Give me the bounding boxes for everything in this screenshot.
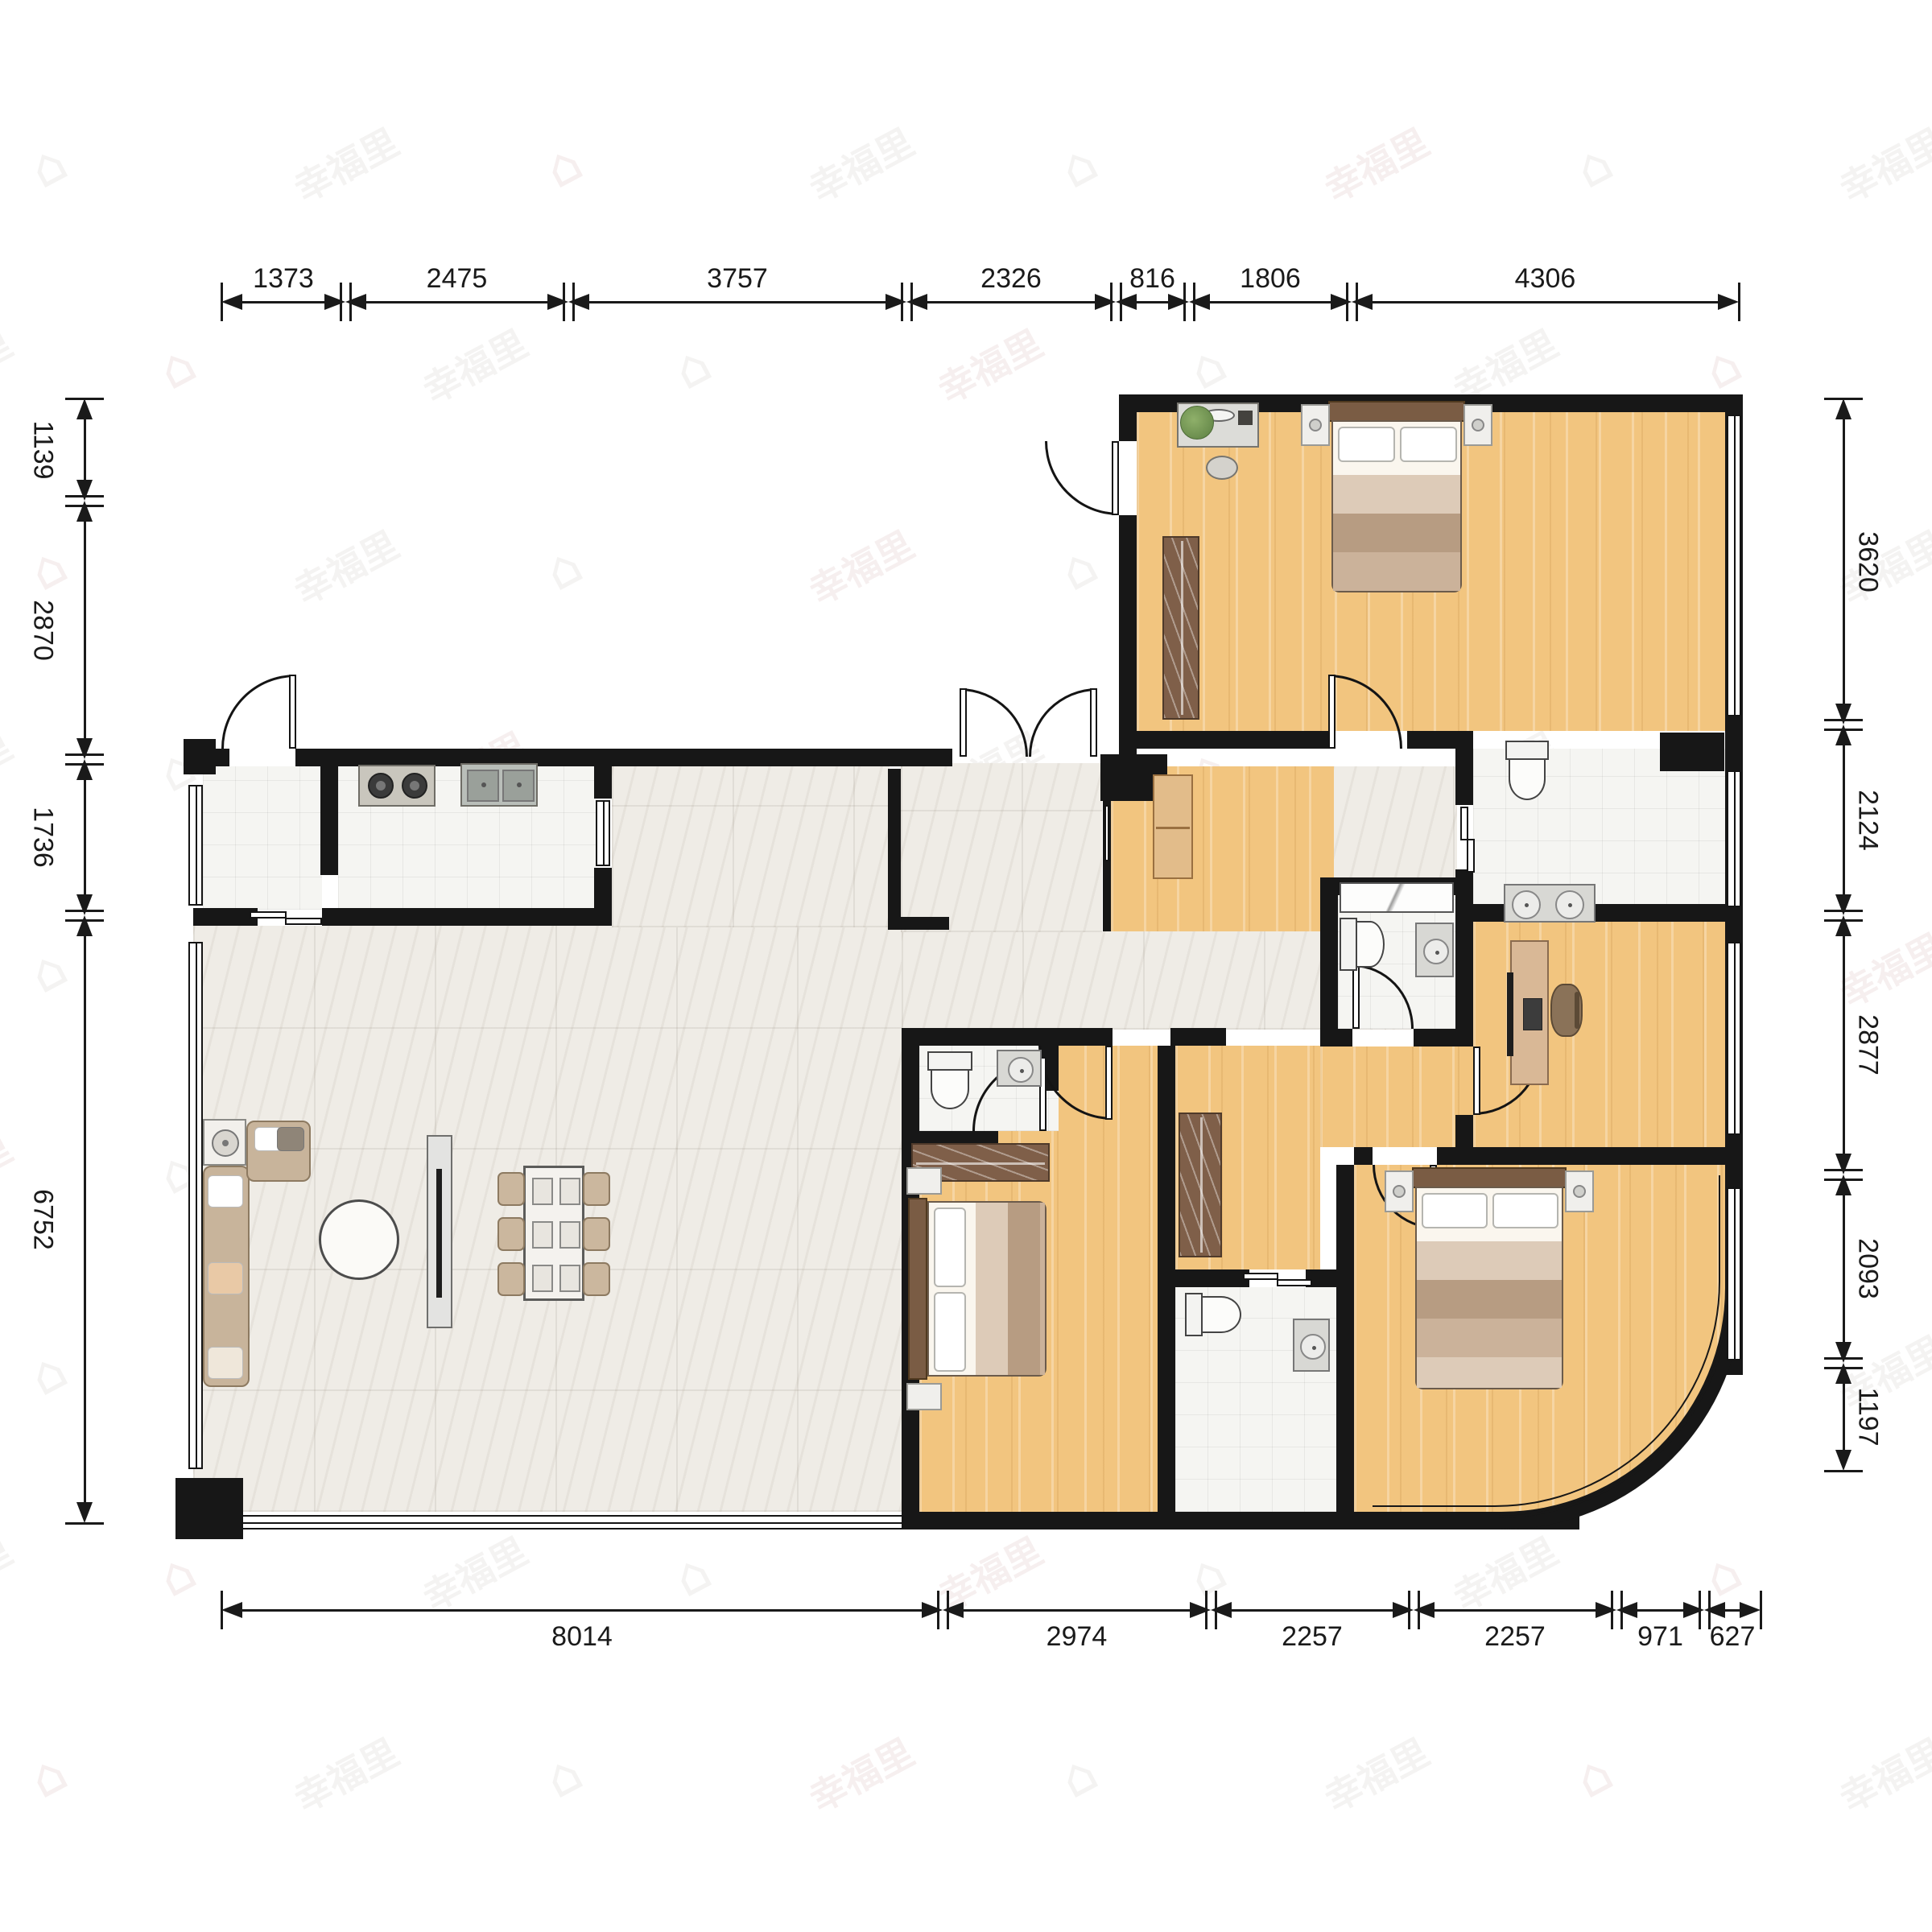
bed-headboard [1412,1167,1567,1188]
dim-arrowhead [76,894,93,915]
drain-icon [481,782,486,787]
sink-basin-icon [1423,939,1449,964]
dim-arrowhead [1393,1602,1414,1618]
dim-arrowhead [885,294,906,310]
wall-segment [1158,1046,1175,1512]
watermark-text: 幸福里 [284,114,407,213]
wall-segment [888,917,949,930]
dim-arrowhead [1704,1602,1725,1618]
toilet-tank [927,1051,972,1071]
window-foyer-pass [1104,805,1111,861]
dim-tick [349,283,352,321]
dim-value-label: 816 [1129,263,1175,295]
dim-arrow-line [1371,301,1719,303]
dim-tick [1824,1357,1863,1360]
watermark-logo-icon: ⌂ [1695,1542,1752,1609]
double-sink-vanity [1504,884,1596,923]
watermark-logo-icon: ⌂ [20,133,77,200]
dim-arrowhead [1211,1602,1232,1618]
dim-arrowhead [1352,294,1373,310]
dim-arrowhead [1835,1174,1851,1195]
dim-value-label: 2093 [1852,1238,1884,1299]
watermark-text: 幸福里 [1443,1522,1567,1621]
watermark-text: 幸福里 [413,315,536,414]
dim-arrowhead [1835,1363,1851,1384]
watermark-text: 幸福里 [413,1522,536,1621]
dim-arrowhead [76,915,93,936]
dim-arrowhead [1835,894,1851,915]
plant [1180,406,1214,440]
dim-tick [901,283,903,321]
dim-arrowhead [221,1602,242,1618]
dim-tick [1708,1591,1711,1629]
dim-arrow-line [84,778,86,896]
wall-segment [919,1028,1113,1046]
dim-arrowhead [1616,1602,1637,1618]
inner-hall-pocket-floor [1320,1046,1473,1147]
drain-icon [1568,903,1572,907]
dim-arrowhead [1095,294,1116,310]
bed-blanket [1417,1241,1562,1388]
watermark-logo-icon: ⌂ [1566,1743,1623,1810]
watermark-logo-icon: ⌂ [664,334,721,402]
watermark-logo-icon: ⌂ [1179,334,1236,402]
watermark-logo-icon: ⌂ [20,938,77,1005]
chair-back-icon [1575,992,1579,1029]
dim-arrowhead [324,294,345,310]
toilet-bowl [1356,921,1385,968]
wall-segment [594,749,612,799]
dining-chair [583,1262,610,1296]
window-study-right [1727,942,1741,1135]
watermark-text: 幸福里 [1443,1925,1567,1932]
dim-arrowhead [76,398,93,419]
dining-chair [497,1172,525,1206]
dim-tick [1824,1169,1863,1171]
dim-value-label: 971 [1637,1621,1683,1653]
master-wardrobe [1162,536,1199,720]
dining-chair [583,1172,610,1206]
dim-arrowhead [1596,1602,1616,1618]
dim-value-label: 2974 [1046,1621,1108,1653]
dim-tick [1699,1591,1701,1629]
dim-arrow-line [1843,418,1845,705]
watermark-logo-icon: ⌂ [20,1340,77,1408]
dim-value-label: 1806 [1240,263,1301,295]
watermark-logo-icon: ⌂ [535,535,592,603]
dim-arrowhead [1835,398,1851,419]
cabinet-shelf-icon [1156,827,1190,829]
sofa-pillow-icon [277,1127,304,1151]
small-bath-toilet [1340,918,1388,974]
main-entry-door-swing-arc [1045,441,1119,515]
small-bath-door-leaf [1352,964,1360,1029]
toilet-tank [1505,741,1549,760]
dim-tick [1183,283,1186,321]
bed-mattress [1415,1187,1563,1389]
dim-tick [1760,1591,1762,1629]
watermark-text: 幸福里 [799,516,923,615]
office-chair [1550,984,1583,1037]
dim-value-label: 627 [1710,1621,1756,1653]
wardrobe-rail-icon [1200,1117,1203,1253]
dim-arrow-line [588,301,887,303]
dim-tick [340,283,342,321]
wardrobe-rail-icon [916,1162,1045,1165]
bed-pillow-icon [1338,427,1395,462]
dim-tick [947,1591,949,1629]
burner-center-icon [376,781,386,791]
main-bath-slide [1460,807,1468,840]
living-upper-floor [612,766,890,927]
dim-value-label: 2257 [1282,1621,1343,1653]
shower-tray [1340,882,1454,913]
dim-arrowhead [1835,915,1851,936]
watermark-logo-icon: ⌂ [1051,535,1108,603]
plate-setting-icon [532,1178,553,1205]
wall-segment [322,908,612,926]
center-bath-sink [1293,1319,1330,1372]
dim-tick [1824,729,1863,731]
dim-arrowhead [1189,294,1210,310]
bed-headboard [908,1198,927,1380]
bed-pillow-icon [1492,1193,1558,1228]
study-door-leaf [1473,1046,1480,1115]
dim-tick [1215,1591,1217,1629]
dresser-stool [1206,456,1238,480]
dim-arrowhead [1414,1602,1435,1618]
center-bath-toilet [1185,1293,1245,1340]
dim-tick [65,910,104,912]
stove [358,765,436,807]
dim-value-label: 4306 [1515,263,1576,295]
wall-segment [1170,1028,1226,1046]
dim-arrowhead [345,294,366,310]
dim-value-label: 8014 [551,1621,613,1653]
wall-segment [175,1478,243,1539]
dresser-drawers-icon [1238,411,1253,425]
watermark-text: 幸福里 [0,315,20,414]
ensuite-toilet [927,1051,976,1113]
tv-icon [436,1169,442,1298]
dim-tick [1824,1470,1863,1472]
toilet-tank [1185,1293,1203,1336]
window-glass-line [603,802,605,865]
small-bath-sink [1415,923,1454,977]
hall-wardrobe [1179,1113,1222,1257]
dim-arrow-line [1843,744,1845,896]
watermark-logo-icon: ⌂ [1051,1743,1108,1810]
dim-value-label: 2870 [27,600,59,661]
wall-segment [1119,394,1137,441]
toilet-bowl [931,1069,969,1109]
dining-chair [583,1217,610,1251]
dim-tick [1205,1591,1207,1629]
dim-arrowhead [1168,294,1189,310]
wall-segment [1336,1165,1354,1512]
bed-mattress [927,1201,1046,1377]
watermark-logo-icon: ⌂ [20,535,77,603]
dim-tick [1824,719,1863,721]
dim-value-label: 1736 [27,807,59,868]
dim-arrowhead [1835,1154,1851,1174]
wall-segment [1414,1029,1473,1046]
dim-arrowhead [568,294,589,310]
dim-tick [1824,1367,1863,1369]
watermark-text: 幸福里 [0,1925,20,1932]
watermark-logo-icon: ⌂ [535,1743,592,1810]
living-double-door-right-leaf [1090,688,1097,757]
bed-pillow-icon [1422,1193,1488,1228]
tv-board [427,1135,452,1328]
watermark-text: 幸福里 [0,717,20,816]
dim-value-label: 6752 [27,1189,59,1250]
watermark-logo-icon: ⌂ [1566,133,1623,200]
dining-chair [497,1262,525,1296]
lamp-center-icon [222,1140,229,1146]
dim-arrowhead [76,501,93,522]
kitchen-slide [250,911,287,919]
watermark-text: 幸福里 [1315,1724,1438,1823]
sofa-pillow-icon [208,1175,243,1207]
dim-value-label: 1139 [27,420,59,479]
dim-value-label: 1373 [253,263,314,295]
wall-segment [1175,1269,1249,1287]
wall-segment [295,749,952,766]
ensuite-sink [997,1050,1042,1087]
window-glass-line [1734,1189,1736,1359]
window-glass-line [1734,772,1736,906]
dining-chair [497,1217,525,1251]
plate-setting-icon [532,1265,553,1292]
watermark-text: 幸福里 [284,516,407,615]
dim-tick [221,283,223,321]
sofa-long [203,1166,250,1387]
bedroom2-bed [906,1167,1050,1410]
entry-vestibule-floor [901,763,1102,932]
storage-door-leaf [289,675,296,749]
dim-arrowhead [1683,1602,1704,1618]
watermark-logo-icon: ⌂ [1179,1542,1236,1609]
sink-basin-icon [1512,890,1541,919]
watermark-text: 幸福里 [928,315,1051,414]
living-double-door-left-leaf [960,688,967,757]
watermark-logo-icon: ⌂ [1051,133,1108,200]
sink-basin-icon [1555,890,1584,919]
drain-icon [1312,1346,1316,1350]
center-bath-slide [1277,1279,1312,1286]
dim-arrowhead [76,1502,93,1523]
sofa-pillow-icon [208,1347,243,1379]
dim-value-label: 2475 [427,263,488,295]
window-mainbath-right [1727,770,1741,907]
watermark-text: 幸福里 [1315,114,1438,213]
hall-east-floor [1332,766,1457,879]
wall-segment [1660,733,1724,771]
bedroom3-bed [1385,1167,1594,1389]
wall-segment [888,769,901,930]
main-entry-door-leaf [1112,441,1119,515]
dim-value-label: 2257 [1484,1621,1546,1653]
dim-arrow-line [1843,1194,1845,1344]
watermark-text: 幸福里 [0,1120,20,1219]
nightstand-knob-icon [1393,1185,1406,1198]
bed-blanket [1333,475,1460,591]
dim-tick [572,283,575,321]
dim-arrowhead [943,1602,964,1618]
floor-plan-canvas: 幸福里⌂幸福里⌂幸福里⌂幸福里⌂幸福里⌂幸福里⌂幸福里⌂幸福里⌂幸福里幸福里⌂幸… [0,0,1932,1932]
bed-mattress [1331,420,1462,592]
wall-segment [1320,1029,1352,1046]
dim-tick [65,398,104,400]
dim-arrowhead [1331,294,1352,310]
dim-tick [1824,1179,1863,1181]
dim-tick [1738,283,1740,321]
dim-tick [65,495,104,497]
dim-tick [65,1522,104,1525]
watermark-text: 幸福里 [1443,0,1567,12]
dim-tick [1193,283,1195,321]
wall-segment [1455,922,1473,1046]
dim-arrowhead [547,294,568,310]
watermark-logo-icon: ⌂ [535,133,592,200]
wall-segment [1320,877,1338,1046]
dim-arrow-line [365,301,549,303]
dim-tick [1408,1591,1410,1629]
watermark-text: 幸福里 [413,0,536,12]
dim-arrow-line [84,418,86,481]
dim-tick [1418,1591,1420,1629]
kitchen-sink [460,763,538,807]
nightstand-knob-icon [1309,419,1322,431]
dim-arrowhead [1835,704,1851,724]
dim-arrowhead [221,294,242,310]
window-glass-line [1734,943,1736,1133]
dim-arrowhead [76,480,93,501]
side-table-lamp [203,1119,246,1166]
dim-arrow-line [1433,1609,1597,1612]
dim-tick [1346,283,1348,321]
dim-tick [65,753,104,756]
dim-arrow-line [1843,935,1845,1155]
dim-tick [563,283,565,321]
watermark-logo-icon: ⌂ [149,1542,206,1609]
wall-segment [1437,1147,1725,1165]
burner-center-icon [410,781,419,791]
dim-arrow-line [1636,1609,1685,1612]
watermark-text: 幸福里 [928,0,1051,12]
watermark-logo-icon: ⌂ [149,334,206,402]
storage-door-swing-arc [221,675,295,749]
watermark-text: 幸福里 [799,114,923,213]
dim-tick [1824,398,1863,400]
watermark-text: 幸福里 [0,0,20,12]
plate-setting-icon [532,1221,553,1249]
dim-tick [65,919,104,922]
dim-arrowhead [1835,1450,1851,1471]
dim-arrow-line [241,301,326,303]
dim-arrowhead [1116,294,1137,310]
dim-tick [65,763,104,766]
dim-arrow-line [84,520,86,740]
watermark-text: 幸福里 [1830,114,1932,213]
wall-segment [1354,1147,1373,1165]
shoe-cabinet [1153,774,1193,879]
toilet-bowl [1509,758,1546,800]
dim-arrowhead [922,1602,943,1618]
sofa-pillow-icon [208,1262,243,1294]
dim-value-label: 2877 [1852,1014,1884,1075]
sink-basin-icon [1008,1057,1034,1083]
window-glass-line [196,943,197,1468]
dim-tick [1356,283,1358,321]
dim-arrowhead [906,294,927,310]
dim-tick [1110,283,1113,321]
keyboard-icon [1523,998,1542,1030]
bed-pillow-icon [934,1292,966,1372]
dim-arrowhead [1835,1342,1851,1363]
dim-arrow-line [1135,301,1170,303]
watermark-text: 幸福里 [928,1925,1051,1932]
dim-tick [1120,283,1122,321]
watermark-logo-icon: ⌂ [20,1743,77,1810]
watermark-logo-icon: ⌂ [1695,334,1752,402]
wall-segment [1119,515,1137,766]
living-double-door-right-swing-arc [1029,688,1097,757]
window-glass-line [196,786,197,904]
watermark-text: 幸福里 [413,1925,536,1932]
nightstand [906,1167,942,1195]
dining-table [523,1166,584,1301]
window-storage-left [188,785,203,906]
main-bath-slide [1467,839,1475,873]
dim-arrowhead [1835,724,1851,745]
wardrobe-rail-icon [1181,541,1183,715]
watermark-text: 幸福里 [284,1724,407,1823]
living-double-door-left-swing-arc [960,688,1028,757]
dim-arrow-line [926,301,1096,303]
dim-tick [221,1591,223,1629]
bed-pillow-icon [1400,427,1457,462]
dim-arrow-line [1843,1382,1845,1451]
dim-tick [1824,910,1863,912]
plate-setting-icon [559,1221,580,1249]
center-bath-slide [1243,1273,1278,1280]
watermark-text: 幸福里 [799,1724,923,1823]
dim-arrowhead [1190,1602,1211,1618]
watermark-text: 幸福里 [1830,1724,1932,1823]
drain-icon [1020,1069,1024,1073]
monitor-icon [1507,972,1513,1056]
dim-arrowhead [1718,294,1739,310]
drain-icon [1435,951,1439,955]
dim-arrowhead [1740,1602,1761,1618]
bed-blanket [976,1203,1045,1375]
wall-segment [320,749,338,875]
armchair [246,1121,311,1182]
window-glass-line [243,1522,902,1524]
window-living-left [188,942,203,1469]
nightstand-knob-icon [1573,1185,1586,1198]
dim-arrow-line [84,935,86,1504]
dim-tick [1611,1591,1613,1629]
dim-arrowhead [76,738,93,759]
kitchen-slide [285,918,322,925]
dim-value-label: 3757 [707,263,768,295]
dim-arrowhead [76,759,93,780]
dim-arrow-line [241,1609,923,1612]
watermark-text: 幸福里 [0,1522,20,1621]
